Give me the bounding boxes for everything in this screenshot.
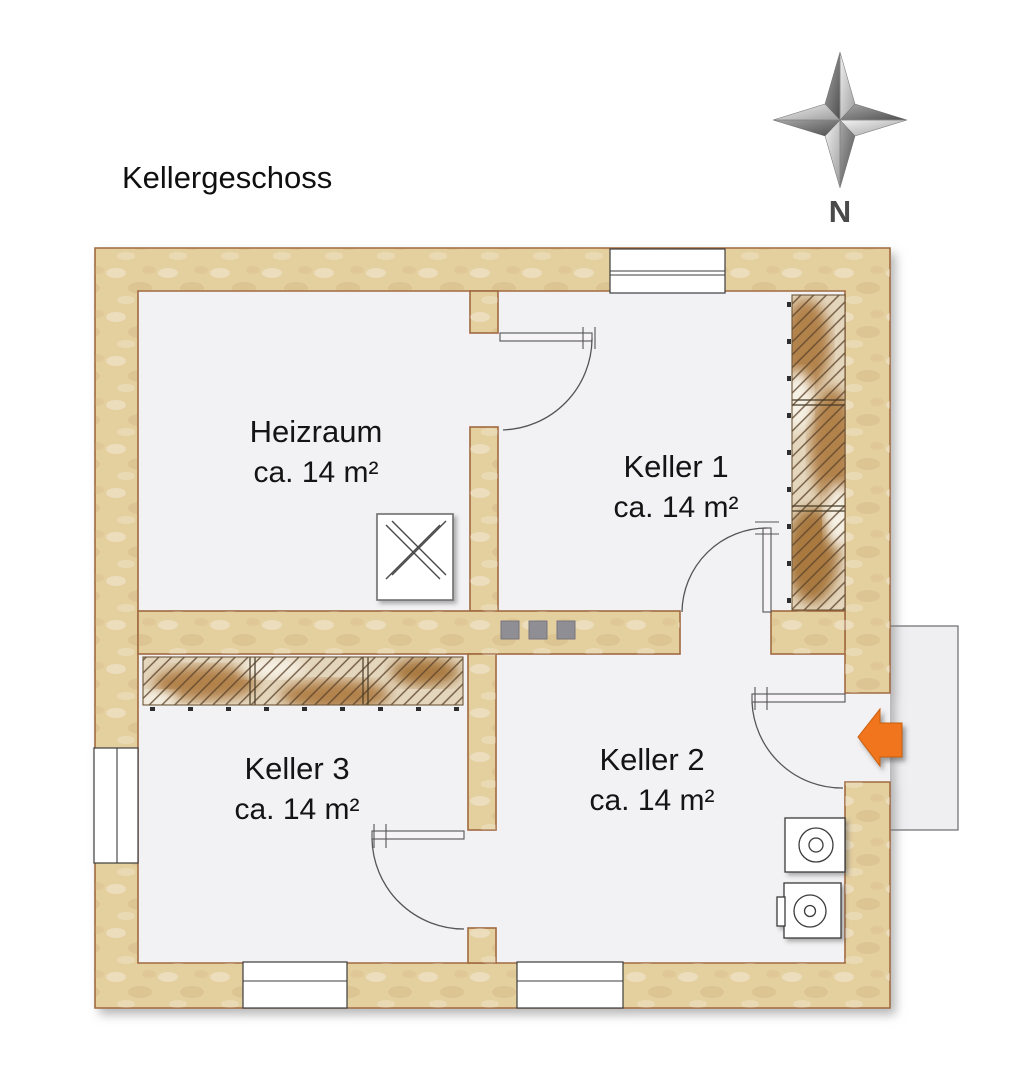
room-area: ca. 14 m² xyxy=(589,781,714,821)
window-south-left xyxy=(243,962,347,1008)
wall-vent-1 xyxy=(501,621,519,639)
room-label-keller1: Keller 1 ca. 14 m² xyxy=(613,446,738,528)
room-name: Keller 2 xyxy=(589,739,714,781)
floor-plan: Kellergeschoss N Heizraum ca. 14 m² Kell… xyxy=(0,0,1021,1080)
wall-vent-3 xyxy=(557,621,575,639)
room-name: Keller 1 xyxy=(613,446,738,488)
room-name: Heizraum xyxy=(250,411,383,453)
staircase-hatch xyxy=(782,295,854,610)
room-area: ca. 14 m² xyxy=(250,453,383,493)
room-area: ca. 14 m² xyxy=(613,488,738,528)
room-label-keller2: Keller 2 ca. 14 m² xyxy=(589,739,714,821)
window-west xyxy=(94,748,138,863)
room-name: Keller 3 xyxy=(234,748,359,790)
chimney-symbol xyxy=(377,514,453,600)
compass-north-label: N xyxy=(829,194,851,230)
appliance-symbol-2 xyxy=(777,883,841,938)
window-south-right xyxy=(517,962,623,1008)
window-north xyxy=(610,249,725,293)
page-title: Kellergeschoss xyxy=(122,160,332,196)
room-area: ca. 14 m² xyxy=(234,790,359,830)
wall-vent-2 xyxy=(529,621,547,639)
room-label-heizraum: Heizraum ca. 14 m² xyxy=(250,411,383,493)
appliance-symbol-1 xyxy=(785,818,845,872)
compass-rose-icon xyxy=(773,52,907,188)
room-label-keller3: Keller 3 ca. 14 m² xyxy=(234,748,359,830)
shelf-hatch xyxy=(133,657,463,710)
